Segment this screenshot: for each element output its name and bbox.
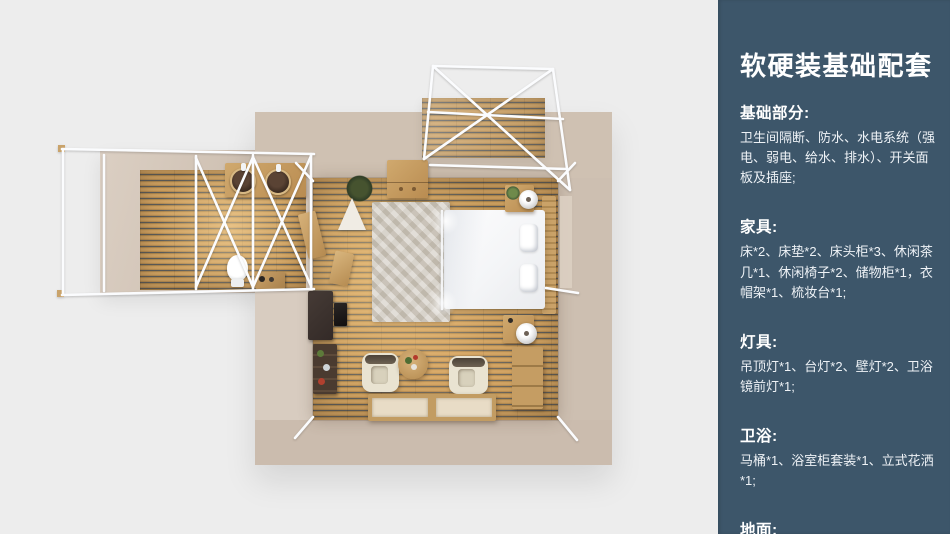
section-basics: 基础部分: 卫生间隔断、防水、水电系统（强电、弱电、给水、排水）、开关面板及插座… [740, 101, 935, 188]
section-heading: 基础部分: [740, 101, 935, 123]
panel-title: 软硬装基础配套 [740, 46, 935, 83]
section-heading: 卫浴: [740, 424, 935, 446]
section-body: 卫生间隔断、防水、水电系统（强电、弱电、给水、排水）、开关面板及插座; [740, 128, 935, 188]
section-heading: 地面: [740, 518, 935, 534]
section-heading: 家具: [740, 215, 935, 237]
section-furniture: 家具: 床*2、床垫*2、床头柜*3、休闲茶几*1、休闲椅子*2、储物柜*1，衣… [740, 215, 935, 302]
section-body: 吊顶灯*1、台灯*2、壁灯*2、卫浴镜前灯*1; [740, 357, 935, 397]
floorplan-image [0, 0, 718, 534]
section-body: 马桶*1、浴室柜套装*1、立式花洒*1; [740, 451, 935, 491]
info-panel: 软硬装基础配套 基础部分: 卫生间隔断、防水、水电系统（强电、弱电、给水、排水）… [718, 0, 950, 534]
section-heading: 灯具: [740, 330, 935, 352]
slide: 软硬装基础配套 基础部分: 卫生间隔断、防水、水电系统（强电、弱电、给水、排水）… [0, 0, 950, 534]
section-lighting: 灯具: 吊顶灯*1、台灯*2、壁灯*2、卫浴镜前灯*1; [740, 330, 935, 397]
section-body: 床*2、床垫*2、床头柜*3、休闲茶几*1、休闲椅子*2、储物柜*1，衣帽架*1… [740, 242, 935, 302]
section-flooring: 地面: 强化木地板、卫生间防滑防潮石塑板; [740, 518, 935, 534]
canopy-frame [0, 0, 718, 534]
section-bathroom: 卫浴: 马桶*1、浴室柜套装*1、立式花洒*1; [740, 424, 935, 491]
